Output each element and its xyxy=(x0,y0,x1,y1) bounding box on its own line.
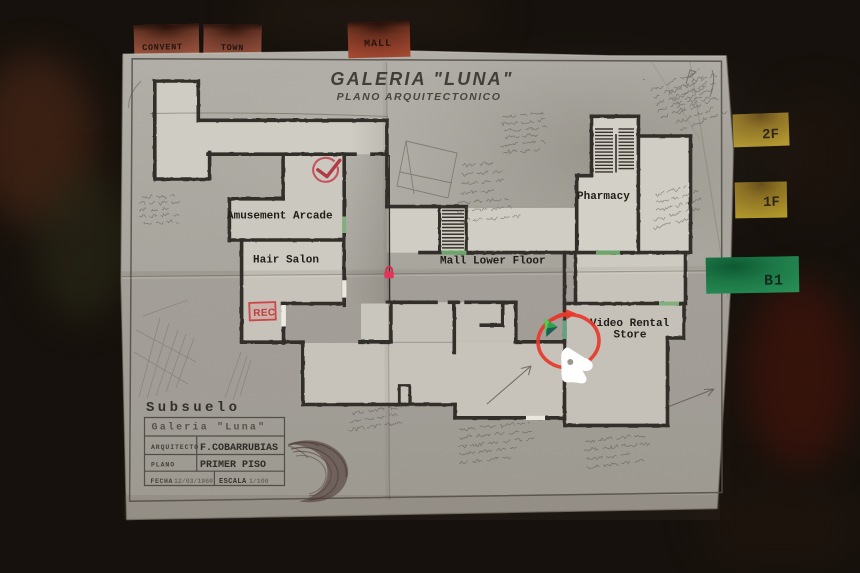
svg-text:PLANO: PLANO xyxy=(151,462,175,469)
svg-text:MALL: MALL xyxy=(364,39,392,51)
svg-text:Mall Lower Floor: Mall Lower Floor xyxy=(440,256,546,268)
svg-text:REC: REC xyxy=(253,307,276,319)
svg-text:Subsuelo: Subsuelo xyxy=(146,400,240,416)
svg-text:Video Rental: Video Rental xyxy=(590,318,670,330)
svg-text:F.COBARRUBIAS: F.COBARRUBIAS xyxy=(200,443,278,454)
svg-text:Store: Store xyxy=(614,330,647,342)
svg-text:Galeria "Luna": Galeria "Luna" xyxy=(152,422,267,434)
svg-text:ARQUITECTO: ARQUITECTO xyxy=(151,444,199,451)
svg-text:12/03/1960: 12/03/1960 xyxy=(174,478,213,485)
svg-text:Amusement Arcade: Amusement Arcade xyxy=(227,211,333,223)
svg-text:FECHA: FECHA xyxy=(151,478,174,485)
svg-text:1/100: 1/100 xyxy=(249,478,269,485)
svg-text:PRIMER PISO: PRIMER PISO xyxy=(200,460,266,471)
svg-text:B1: B1 xyxy=(764,272,784,289)
svg-text:GALERIA "LUNA": GALERIA "LUNA" xyxy=(330,69,513,89)
svg-text:PLANO ARQUITECTONICO: PLANO ARQUITECTONICO xyxy=(337,91,502,103)
svg-text:ESCALA: ESCALA xyxy=(219,478,247,486)
svg-text:Pharmacy: Pharmacy xyxy=(577,191,630,203)
svg-text:Hair Salon: Hair Salon xyxy=(253,255,319,267)
svg-text:TOWN: TOWN xyxy=(221,43,244,53)
svg-text:CONVENT: CONVENT xyxy=(142,42,183,53)
